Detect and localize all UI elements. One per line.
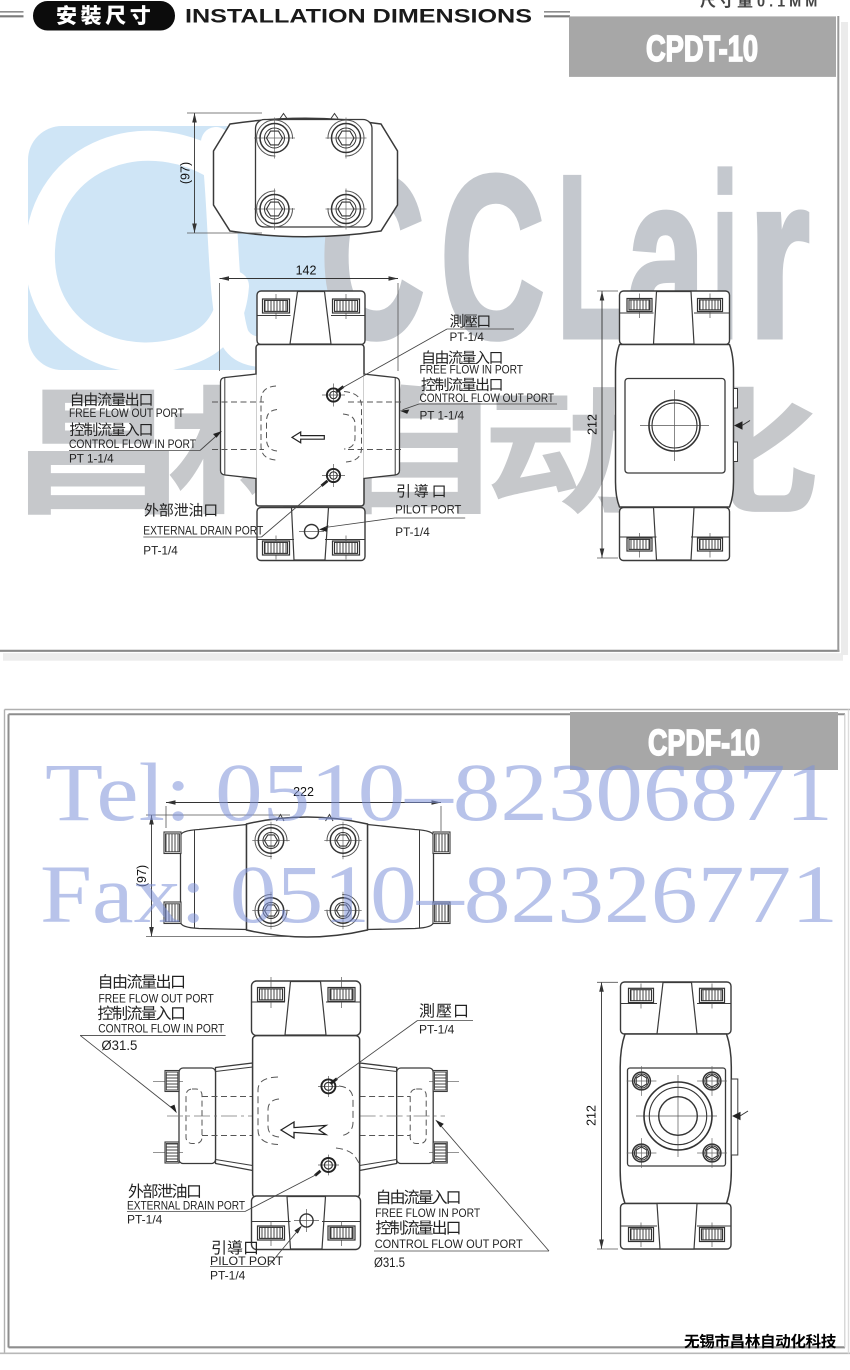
svg-text:Ø31.5: Ø31.5 — [101, 1038, 137, 1053]
svg-text:r: r — [748, 128, 810, 387]
svg-text:Fax: 0510–82326771: Fax: 0510–82326771 — [40, 848, 838, 940]
svg-text:CONTROL FLOW OUT PORT: CONTROL FLOW OUT PORT — [375, 1237, 524, 1251]
svg-text:Ø31.5: Ø31.5 — [374, 1255, 405, 1270]
svg-text:Tel: 0510–82306871: Tel: 0510–82306871 — [45, 746, 833, 838]
svg-text:PT-1/4: PT-1/4 — [210, 1269, 246, 1283]
svg-text:CPDT-10: CPDT-10 — [646, 28, 758, 69]
svg-text:FREE FLOW OUT PORT: FREE FLOW OUT PORT — [99, 992, 215, 1006]
svg-text:CONTROL FLOW IN PORT: CONTROL FLOW IN PORT — [69, 438, 196, 451]
svg-text:FREE FLOW IN PORT: FREE FLOW IN PORT — [375, 1206, 481, 1220]
svg-text:PT 1-1/4: PT 1-1/4 — [420, 410, 465, 423]
svg-text:EXTERNAL DRAIN PORT: EXTERNAL DRAIN PORT — [127, 1199, 246, 1213]
svg-text:FREE FLOW IN PORT: FREE FLOW IN PORT — [420, 364, 524, 377]
svg-text:EXTERNAL DRAIN PORT: EXTERNAL DRAIN PORT — [143, 525, 263, 538]
svg-text:C: C — [440, 128, 545, 387]
svg-text:0.1MM: 0.1MM — [757, 0, 821, 11]
svg-text:PILOT PORT: PILOT PORT — [395, 504, 461, 517]
svg-text:142: 142 — [296, 264, 317, 278]
svg-text:PT 1-1/4: PT 1-1/4 — [69, 453, 114, 466]
svg-text:PT-1/4: PT-1/4 — [395, 526, 430, 539]
svg-text:CONTROL FLOW IN PORT: CONTROL FLOW IN PORT — [98, 1021, 225, 1035]
svg-text:CONTROL FLOW OUT PORT: CONTROL FLOW OUT PORT — [420, 392, 555, 405]
svg-text:PT-1/4: PT-1/4 — [450, 331, 485, 344]
svg-text:PT-1/4: PT-1/4 — [143, 545, 178, 558]
svg-text:212: 212 — [586, 414, 600, 435]
svg-text:PT-1/4: PT-1/4 — [127, 1213, 163, 1227]
svg-text:L: L — [557, 128, 624, 387]
svg-text:PT-1/4: PT-1/4 — [419, 1023, 455, 1037]
svg-text:INSTALLATION DIMENSIONS: INSTALLATION DIMENSIONS — [185, 6, 532, 27]
svg-text:212: 212 — [585, 1105, 599, 1126]
svg-text:(97): (97) — [179, 162, 193, 184]
svg-text:PILOT PORT: PILOT PORT — [210, 1254, 284, 1268]
svg-text:FREE FLOW OUT PORT: FREE FLOW OUT PORT — [69, 407, 184, 420]
